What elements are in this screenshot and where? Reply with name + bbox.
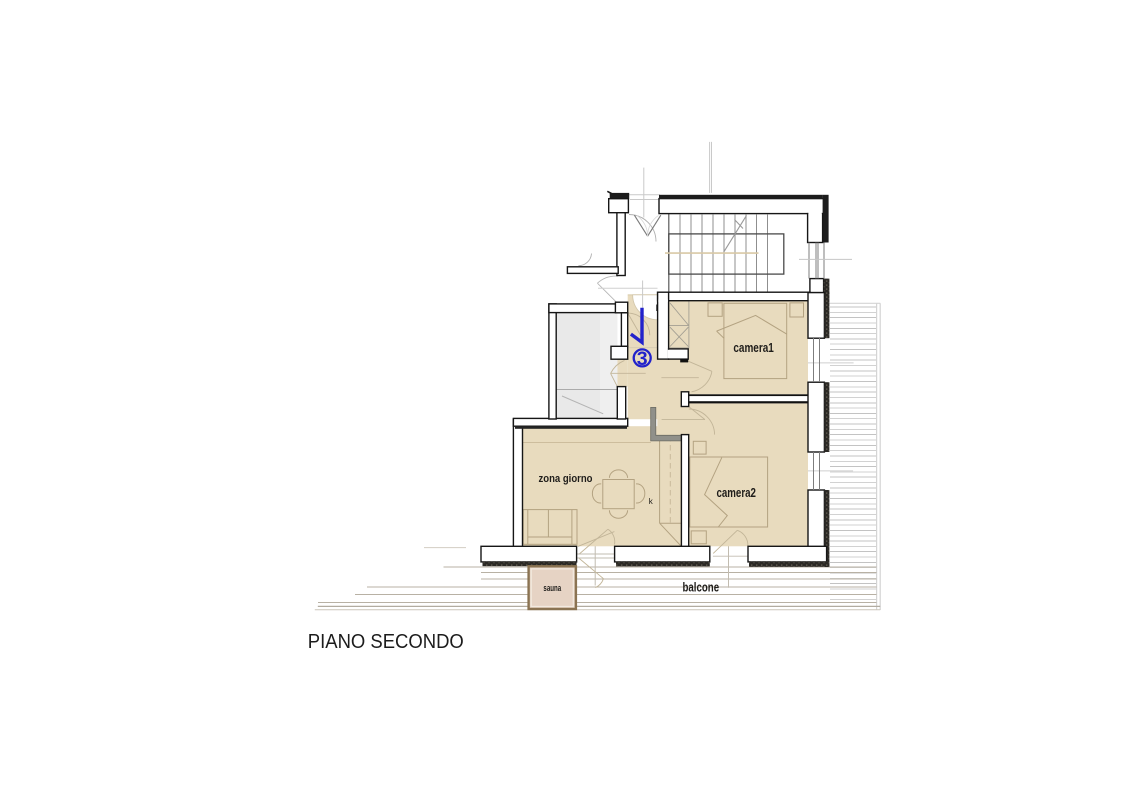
svg-text:PIANO SECONDO: PIANO SECONDO xyxy=(308,631,464,653)
svg-text:camera1: camera1 xyxy=(733,341,774,355)
svg-text:sauna: sauna xyxy=(543,583,561,594)
svg-text:zona giorno: zona giorno xyxy=(539,473,593,485)
svg-text:balcone: balcone xyxy=(683,581,720,595)
svg-text:camera2: camera2 xyxy=(716,486,756,500)
svg-text:3: 3 xyxy=(637,348,648,370)
